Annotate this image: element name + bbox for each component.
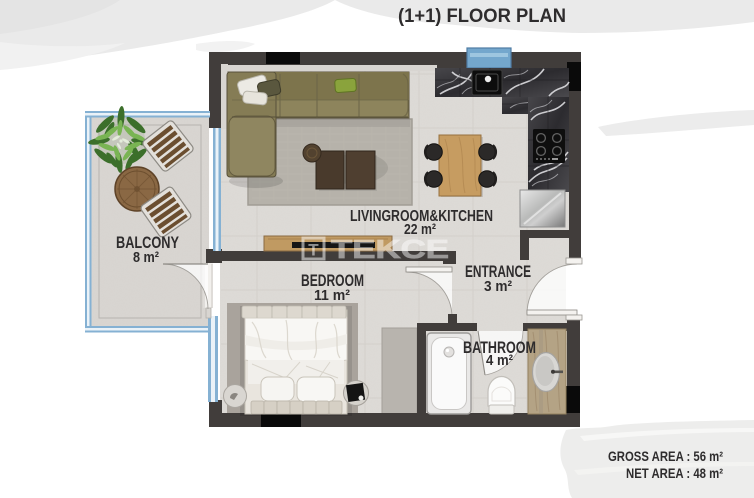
svg-text:TEKCE: TEKCE xyxy=(331,234,449,264)
svg-text:3 m²: 3 m² xyxy=(484,278,512,295)
svg-text:8 m²: 8 m² xyxy=(133,249,159,266)
svg-text:11 m²: 11 m² xyxy=(314,287,350,304)
svg-text:T: T xyxy=(308,241,319,260)
svg-text:GROSS AREA : 56 m²: GROSS AREA : 56 m² xyxy=(608,448,723,464)
svg-text:4 m²: 4 m² xyxy=(486,352,513,369)
svg-text:NET AREA : 48 m²: NET AREA : 48 m² xyxy=(626,465,723,481)
svg-text:(1+1) FLOOR PLAN: (1+1) FLOOR PLAN xyxy=(398,5,566,27)
